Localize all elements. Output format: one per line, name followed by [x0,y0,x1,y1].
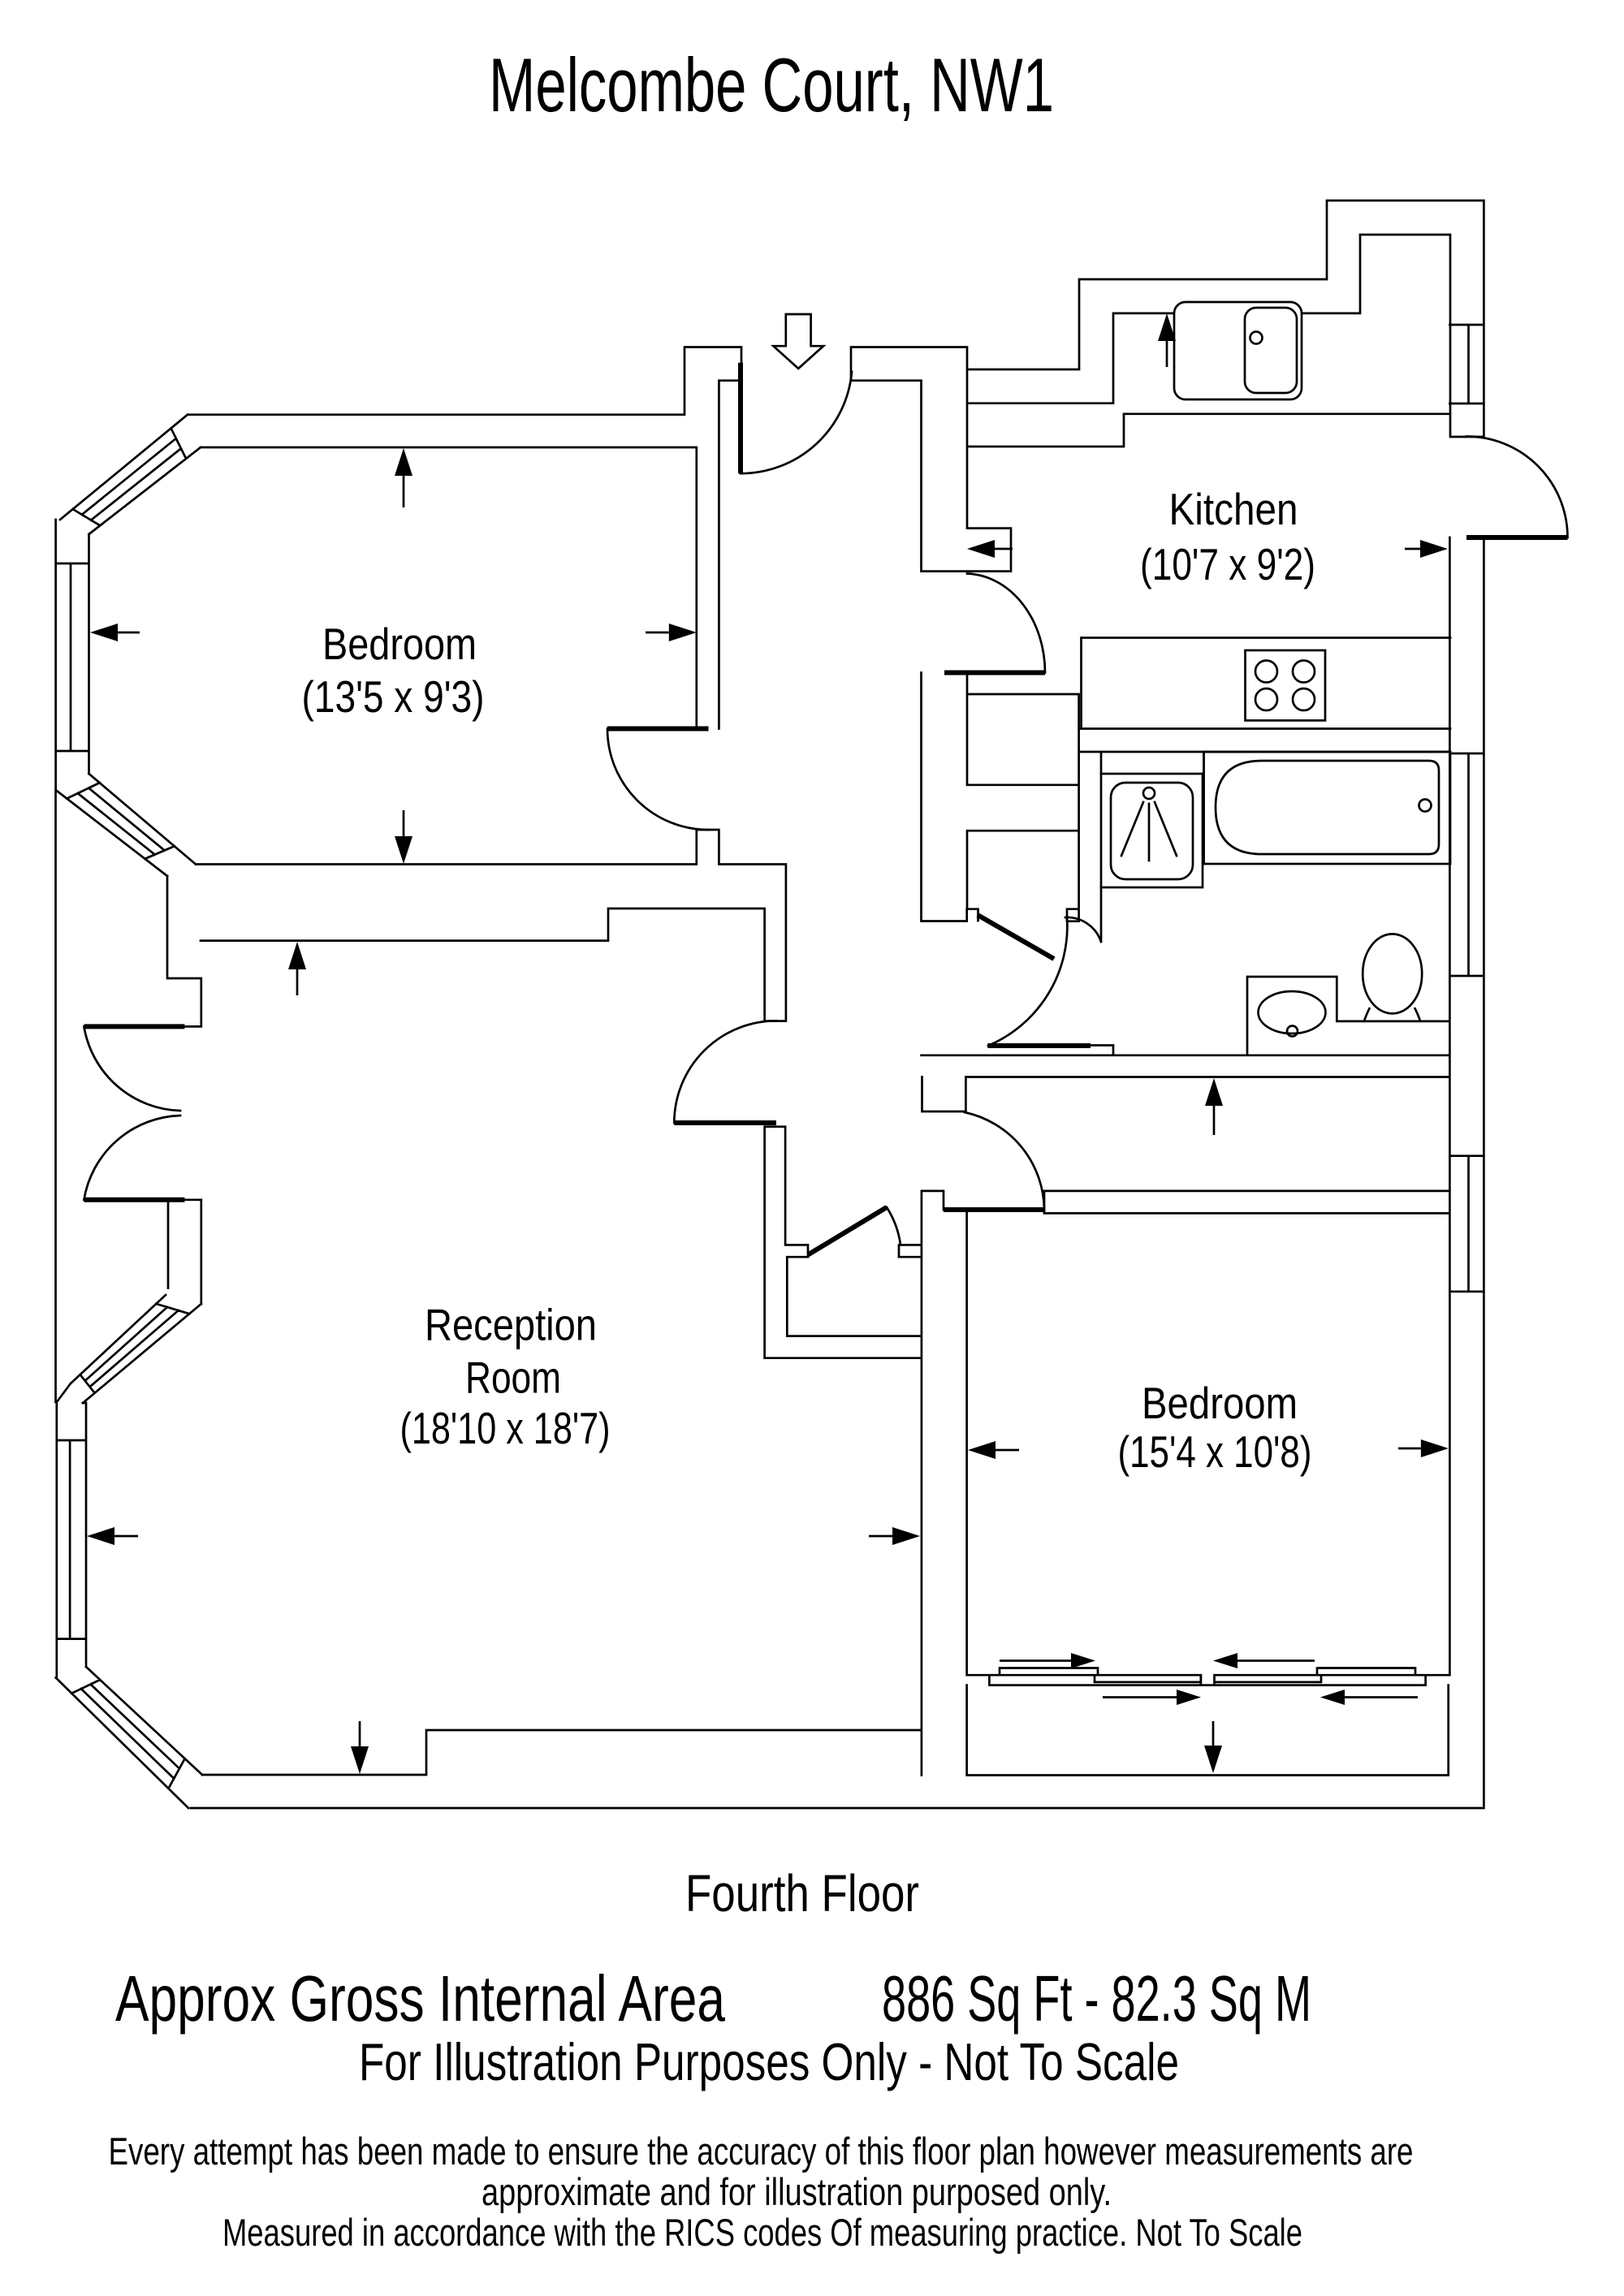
svg-text:886 Sq Ft - 82.3 Sq M: 886 Sq Ft - 82.3 Sq M [882,1962,1311,2035]
svg-text:Room: Room [465,1353,561,1403]
svg-text:Bedroom: Bedroom [1142,1378,1298,1428]
svg-text:Bedroom: Bedroom [322,619,477,669]
svg-text:Melcombe Court, NW1: Melcombe Court, NW1 [489,42,1054,127]
svg-text:For Illustration Purposes Only: For Illustration Purposes Only - Not To … [359,2032,1179,2091]
svg-text:(18'10 x 18'7): (18'10 x 18'7) [400,1403,611,1453]
svg-text:Approx Gross Internal Area: Approx Gross Internal Area [115,1962,725,2035]
svg-text:Reception: Reception [425,1300,597,1350]
svg-text:(15'4 x 10'8): (15'4 x 10'8) [1118,1426,1312,1477]
svg-text:(10'7 x 9'2): (10'7 x 9'2) [1140,539,1315,589]
svg-text:Fourth Floor: Fourth Floor [685,1864,919,1923]
svg-text:Kitchen: Kitchen [1169,484,1298,534]
svg-text:Measured in accordance with th: Measured in accordance with the RICS cod… [222,2211,1302,2254]
svg-text:(13'5 x 9'3): (13'5 x 9'3) [302,671,485,722]
svg-text:approximate and for illustrati: approximate and for illustration purpose… [482,2170,1112,2213]
svg-text:Every attempt has been made to: Every attempt has been made to ensure th… [109,2130,1414,2173]
